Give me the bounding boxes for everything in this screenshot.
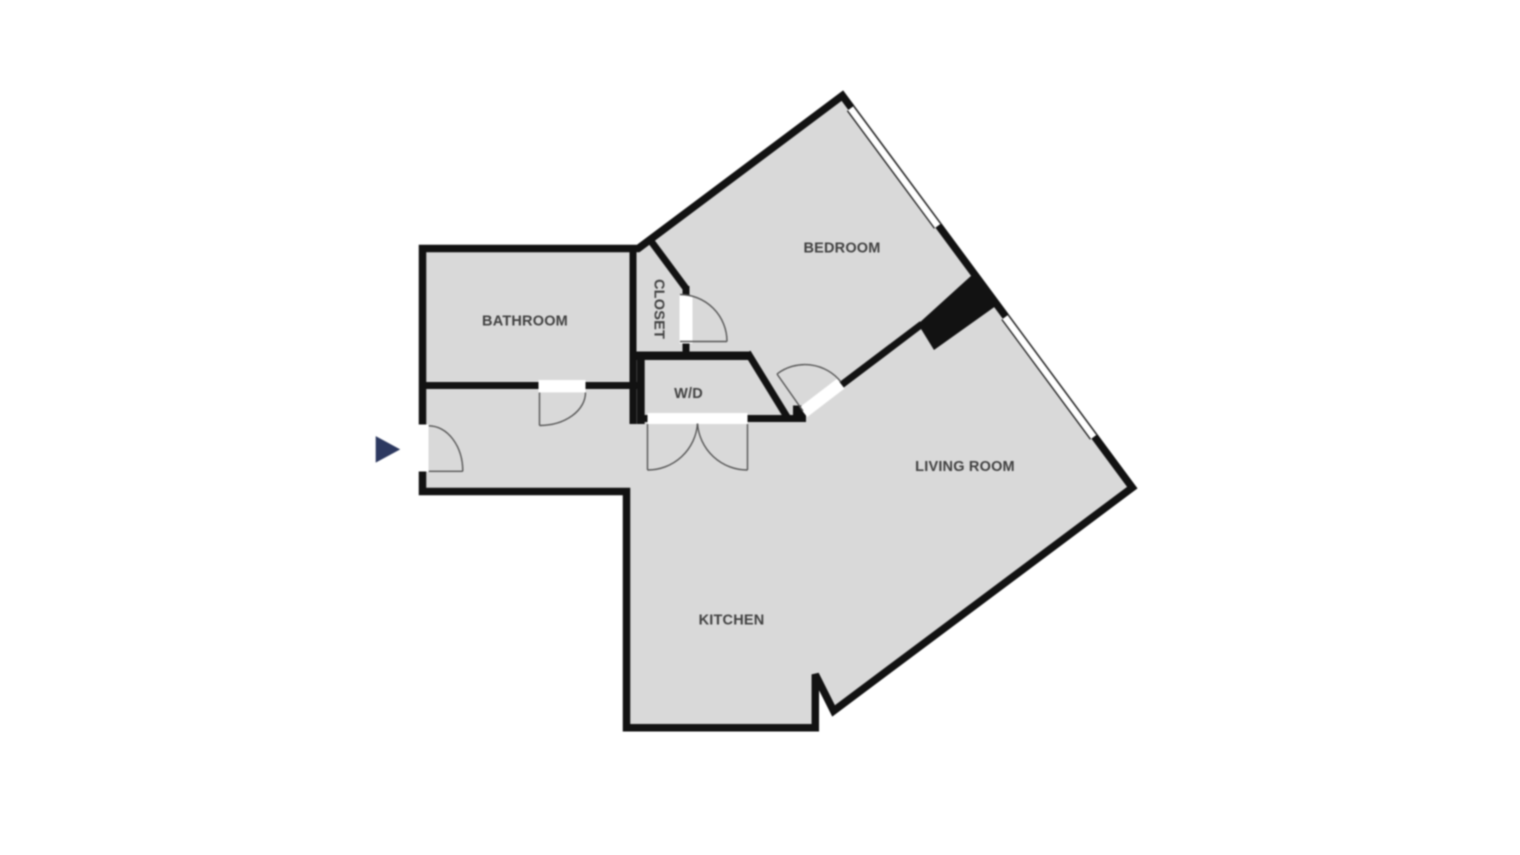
svg-text:KITCHEN: KITCHEN [699,613,765,629]
svg-text:CLOSET: CLOSET [651,279,667,339]
svg-text:W/D: W/D [674,386,703,402]
svg-text:BATHROOM: BATHROOM [482,314,568,330]
svg-text:BEDROOM: BEDROOM [803,240,880,256]
svg-text:LIVING ROOM: LIVING ROOM [915,459,1015,475]
